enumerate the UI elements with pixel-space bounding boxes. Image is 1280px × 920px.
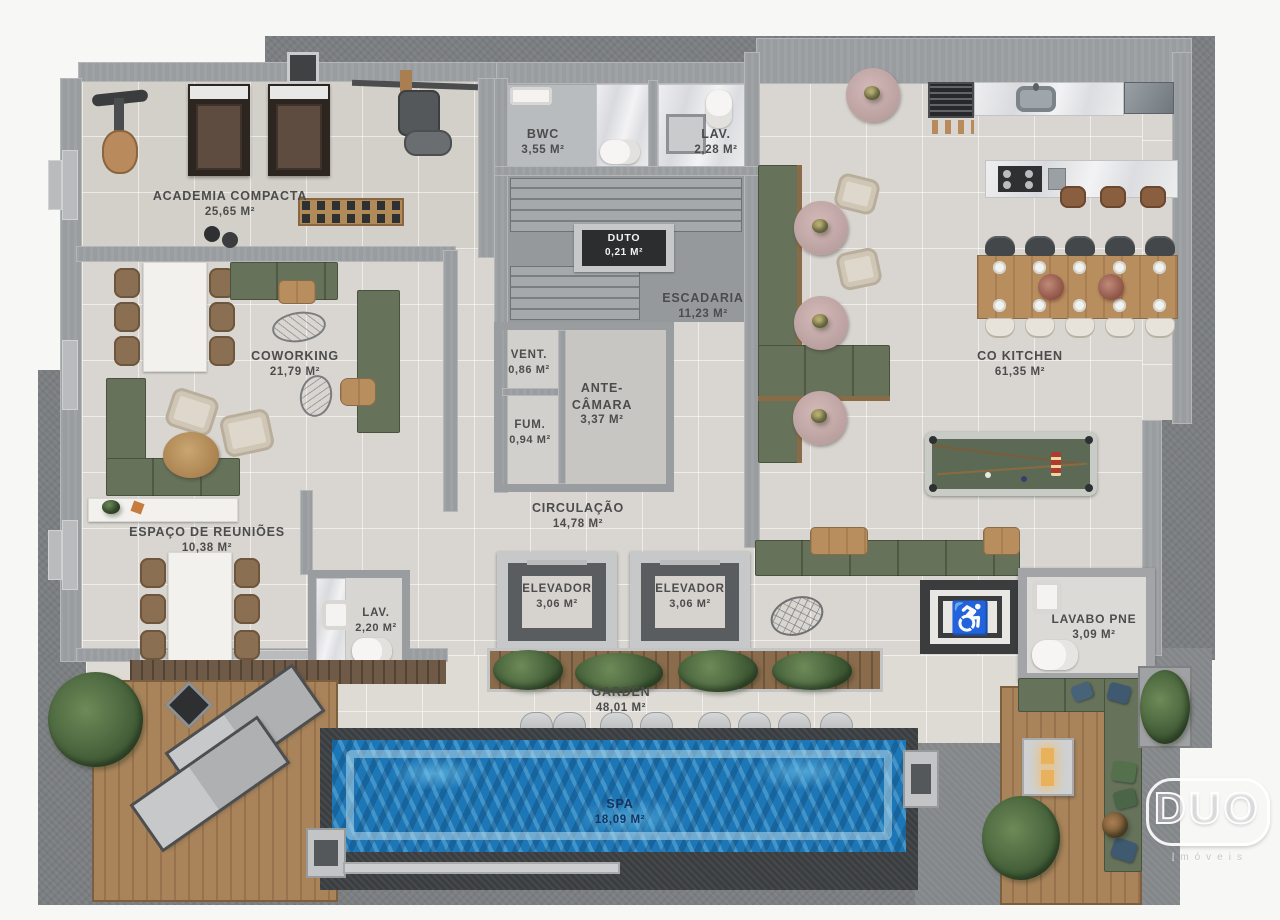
sill-left-1 bbox=[48, 160, 62, 210]
treadmill-1 bbox=[188, 84, 250, 176]
chair bbox=[1145, 236, 1175, 256]
fire-lamp bbox=[1041, 748, 1054, 764]
wall-gym-bottom bbox=[76, 246, 456, 262]
chair bbox=[985, 318, 1015, 338]
chair bbox=[114, 268, 140, 298]
room-area: 3,09 M² bbox=[1052, 628, 1137, 643]
room-label-academia: ACADEMIA COMPACTA 25,65 M² bbox=[153, 188, 307, 220]
fire-lamp bbox=[1041, 770, 1054, 786]
place-setting bbox=[1073, 261, 1086, 274]
sink bbox=[1032, 580, 1062, 614]
brand-tagline: imóveis bbox=[1172, 852, 1248, 863]
room-label-reunioes: ESPAÇO DE REUNIÕES 10,38 M² bbox=[129, 524, 285, 556]
machine-pad bbox=[404, 130, 452, 156]
dumbbell-rack bbox=[298, 198, 404, 226]
room-label-elevador-1: ELEVADOR 3,06 M² bbox=[522, 582, 591, 612]
room-area: 18,09 M² bbox=[595, 813, 645, 828]
wall-meeting-stub bbox=[300, 490, 313, 575]
room-label-escadaria: ESCADARIA 11,23 M² bbox=[662, 290, 744, 322]
floorplan-canvas: DUTO 0,21 M² bbox=[0, 0, 1280, 920]
bar-stool bbox=[1100, 186, 1126, 208]
chair bbox=[1105, 236, 1135, 256]
window-left-1 bbox=[62, 150, 78, 220]
room-name: ACADEMIA COMPACTA bbox=[153, 189, 307, 203]
kettlebells bbox=[204, 222, 240, 252]
room-label-garden: GARDEN 48,01 M² bbox=[592, 684, 651, 716]
room-area: 11,23 M² bbox=[662, 307, 744, 322]
wall-right-upper bbox=[1172, 52, 1192, 424]
faucet bbox=[1033, 83, 1039, 91]
sill-left-2 bbox=[48, 530, 62, 580]
sink bbox=[510, 87, 552, 105]
chair bbox=[985, 236, 1015, 256]
chair bbox=[114, 336, 140, 366]
accessibility-tile: ♿ bbox=[920, 580, 1020, 654]
room-label-bwc: BWC 3,55 M² bbox=[521, 126, 564, 158]
coffee-table-small bbox=[278, 280, 316, 304]
wall-bwc-bottom bbox=[494, 166, 760, 176]
pool-pocket bbox=[1085, 436, 1093, 444]
wheelchair-glyph: ♿ bbox=[950, 600, 990, 636]
room-area: 0,86 M² bbox=[508, 363, 550, 378]
room-area: 2,20 M² bbox=[355, 621, 397, 636]
room-name: ESCADARIA bbox=[662, 291, 744, 305]
room-name: FUM. bbox=[514, 419, 545, 431]
room-name: COWORKING bbox=[251, 349, 339, 363]
treadmill-console bbox=[270, 86, 328, 99]
banquette-lounge-horizontal bbox=[758, 345, 890, 397]
duo-logo-text: DUO bbox=[1154, 784, 1261, 834]
room-area: 61,35 M² bbox=[977, 365, 1063, 380]
kettlebell bbox=[204, 226, 220, 242]
pool-table bbox=[925, 432, 1097, 496]
room-area: 10,38 M² bbox=[129, 541, 285, 556]
bush bbox=[982, 796, 1060, 880]
tree bbox=[48, 672, 143, 767]
planter-shrub bbox=[678, 650, 758, 692]
table-flowers bbox=[811, 409, 827, 423]
coworking-table bbox=[143, 262, 207, 372]
pillow bbox=[1111, 760, 1138, 783]
plant-small bbox=[1102, 812, 1128, 838]
duo-logo-tagline: imóveis bbox=[1150, 852, 1270, 863]
room-label-cokitchen: CO KITCHEN 61,35 M² bbox=[977, 348, 1063, 380]
billiard-ball bbox=[985, 472, 991, 478]
room-name: BWC bbox=[527, 127, 559, 141]
accessibility-icon: ♿ bbox=[920, 586, 1020, 650]
bike-seat bbox=[102, 130, 138, 174]
chair bbox=[1025, 236, 1055, 256]
place-setting bbox=[993, 299, 1006, 312]
meeting-table bbox=[168, 552, 232, 670]
bar-stool bbox=[1060, 186, 1086, 208]
sink bbox=[322, 600, 350, 630]
machine-barbell bbox=[352, 80, 478, 90]
wall-top-right bbox=[756, 38, 1192, 84]
burner bbox=[1025, 170, 1033, 178]
toilet bbox=[600, 140, 640, 164]
grill-skewers bbox=[932, 120, 974, 134]
pool-pillar bbox=[903, 750, 939, 808]
room-label-spa: SPA 18,09 M² bbox=[595, 796, 645, 828]
duo-logo: DUO imóveis bbox=[1146, 778, 1274, 870]
pool-pocket bbox=[929, 436, 937, 444]
centerpiece-plant bbox=[1038, 274, 1064, 300]
room-name: CIRCULAÇÃO bbox=[532, 501, 624, 515]
pool-pillar bbox=[306, 828, 346, 878]
wall-vent-fum-separator bbox=[502, 388, 562, 396]
chair bbox=[140, 558, 166, 588]
place-setting bbox=[993, 261, 1006, 274]
table-flowers bbox=[812, 314, 828, 328]
room-name: ELEVADOR bbox=[522, 583, 591, 595]
pool-pocket bbox=[1085, 484, 1093, 492]
room-name: LAVABO PNE bbox=[1052, 612, 1137, 626]
room-label-fum: FUM. 0,94 M² bbox=[509, 418, 551, 448]
bench-wood-table bbox=[810, 527, 868, 555]
room-area: 25,65 M² bbox=[153, 205, 307, 220]
wall-bwc-lav-separator bbox=[648, 80, 658, 172]
bench-long bbox=[755, 540, 1020, 576]
fire-table bbox=[1022, 738, 1074, 796]
treadmill-console bbox=[190, 86, 248, 99]
chair bbox=[234, 630, 260, 660]
room-label-lavabo-pne: LAVABO PNE 3,09 M² bbox=[1052, 612, 1137, 643]
room-label-lav-top: LAV. 2,28 M² bbox=[694, 126, 737, 158]
room-area: 48,01 M² bbox=[592, 701, 651, 716]
round-coffee-table bbox=[163, 432, 219, 478]
planter-shrub bbox=[772, 652, 852, 690]
room-name: ANTE-CÂMARA bbox=[572, 381, 632, 412]
duct-square-top bbox=[287, 52, 319, 84]
billiard-balls bbox=[1051, 452, 1061, 476]
room-label-vent: VENT. 0,86 M² bbox=[508, 348, 550, 378]
chair bbox=[1025, 318, 1055, 338]
place-setting bbox=[1073, 299, 1086, 312]
room-area: 0,94 M² bbox=[509, 433, 551, 448]
machine-post bbox=[400, 70, 412, 92]
pool-pillar-core bbox=[911, 764, 931, 794]
cooktop bbox=[998, 166, 1042, 192]
place-setting bbox=[1153, 299, 1166, 312]
room-label-elevador-2: ELEVADOR 3,06 M² bbox=[655, 582, 724, 612]
table-flowers bbox=[864, 86, 880, 100]
room-area: 3,37 M² bbox=[554, 413, 650, 428]
treadmill-2 bbox=[268, 84, 330, 176]
room-area: 0,21 M² bbox=[605, 246, 643, 259]
chair bbox=[140, 630, 166, 660]
room-label-lav-meeting: LAV. 2,20 M² bbox=[355, 606, 397, 636]
kitchen-counter-dark bbox=[1124, 82, 1174, 114]
chair bbox=[114, 302, 140, 332]
chair bbox=[140, 594, 166, 624]
room-label-duto: DUTO 0,21 M² bbox=[605, 232, 643, 259]
treadmill-belt bbox=[196, 104, 242, 170]
billiard-ball bbox=[1021, 476, 1027, 482]
chair bbox=[1065, 318, 1095, 338]
plant bbox=[1140, 670, 1190, 744]
elevator-door bbox=[527, 560, 587, 565]
dumbbells-row-1 bbox=[302, 201, 400, 210]
brand-name: DUO bbox=[1154, 784, 1261, 833]
table-flowers bbox=[812, 219, 828, 233]
chair bbox=[209, 336, 235, 366]
room-area: 2,28 M² bbox=[694, 143, 737, 158]
room-name: DUTO bbox=[608, 232, 641, 244]
kettlebell bbox=[222, 232, 238, 248]
grill bbox=[928, 82, 974, 118]
elevator-door bbox=[660, 560, 720, 565]
kitchen-sink bbox=[1016, 86, 1056, 112]
bar-stool bbox=[1140, 186, 1166, 208]
burner bbox=[1003, 170, 1011, 178]
room-label-coworking: COWORKING 21,79 M² bbox=[251, 348, 339, 380]
stair-flight-lower bbox=[510, 266, 640, 320]
chair bbox=[1065, 236, 1095, 256]
room-name: LAV. bbox=[362, 607, 390, 619]
window-left-2 bbox=[62, 340, 78, 410]
centerpiece-plant bbox=[1098, 274, 1124, 300]
treadmill-belt bbox=[276, 104, 322, 170]
pool-pocket bbox=[929, 484, 937, 492]
wall-top-mid bbox=[496, 62, 760, 84]
pool-pillar-core bbox=[314, 840, 338, 866]
chair bbox=[234, 558, 260, 588]
room-name: VENT. bbox=[511, 349, 548, 361]
room-name: LAV. bbox=[701, 127, 731, 141]
place-setting bbox=[1113, 261, 1126, 274]
toilet bbox=[706, 90, 732, 128]
room-area: 3,06 M² bbox=[522, 597, 591, 612]
room-area: 14,78 M² bbox=[532, 517, 624, 532]
room-area: 21,79 M² bbox=[251, 365, 339, 380]
place-setting bbox=[1113, 299, 1126, 312]
side-table bbox=[340, 378, 376, 406]
chair bbox=[1145, 318, 1175, 338]
place-setting bbox=[1153, 261, 1166, 274]
pool-rail bbox=[343, 862, 620, 874]
chair bbox=[234, 594, 260, 624]
room-name: CO KITCHEN bbox=[977, 349, 1063, 363]
place-setting bbox=[1033, 261, 1046, 274]
chair bbox=[209, 302, 235, 332]
burner bbox=[1003, 181, 1011, 189]
place-setting bbox=[1033, 299, 1046, 312]
planter-shrub bbox=[493, 650, 563, 690]
wall-coworking-right bbox=[443, 250, 458, 512]
credenza-plant bbox=[102, 500, 120, 514]
chair bbox=[1105, 318, 1135, 338]
room-name: GARDEN bbox=[592, 685, 651, 699]
burner bbox=[1025, 181, 1033, 189]
window-left-3 bbox=[62, 520, 78, 590]
sofa-coworking-right bbox=[357, 290, 400, 433]
room-name: ELEVADOR bbox=[655, 583, 724, 595]
exercise-bike bbox=[92, 88, 150, 176]
dumbbells-row-2 bbox=[302, 214, 400, 223]
room-label-circulacao: CIRCULAÇÃO 14,78 M² bbox=[532, 500, 624, 532]
room-area: 3,55 M² bbox=[521, 143, 564, 158]
banquette-lounge-vertical bbox=[758, 165, 798, 463]
room-area: 3,06 M² bbox=[655, 597, 724, 612]
toilet bbox=[1032, 640, 1078, 670]
bench-wood-table bbox=[983, 527, 1020, 555]
weight-machine bbox=[352, 70, 478, 160]
room-name: ESPAÇO DE REUNIÕES bbox=[129, 525, 285, 539]
room-name: SPA bbox=[606, 797, 633, 811]
room-label-antecamara: ANTE-CÂMARA 3,37 M² bbox=[554, 380, 650, 428]
